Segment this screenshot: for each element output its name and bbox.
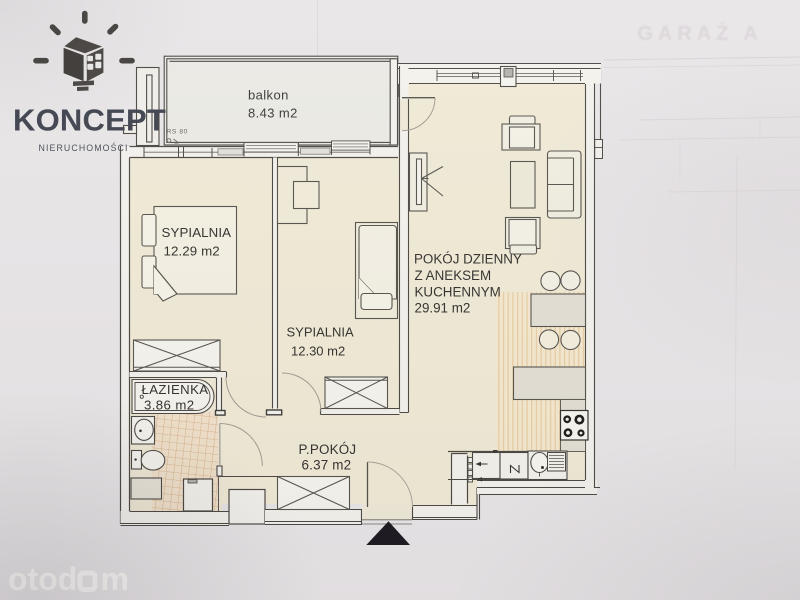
svg-text:SYPIALNIA: SYPIALNIA: [162, 225, 232, 240]
svg-text:3.86 m2: 3.86 m2: [144, 398, 194, 413]
svg-text:balkon: balkon: [248, 88, 289, 103]
svg-text:POKÓJ DZIENNY: POKÓJ DZIENNY: [414, 252, 522, 267]
svg-text:29.91 m2: 29.91 m2: [415, 301, 471, 316]
svg-text:6.37 m2: 6.37 m2: [302, 458, 352, 473]
svg-text:KUCHENNYM: KUCHENNYM: [415, 285, 501, 300]
svg-text:otod: otod: [8, 561, 77, 597]
svg-text:RS 80: RS 80: [167, 129, 188, 136]
svg-text:NIERUCHOMOŚCI: NIERUCHOMOŚCI: [39, 142, 129, 153]
svg-text:SYPIALNIA: SYPIALNIA: [287, 325, 355, 340]
svg-text:ŁAZIENKA: ŁAZIENKA: [142, 382, 209, 397]
svg-text:Z ANEKSEM: Z ANEKSEM: [415, 268, 492, 283]
svg-text:m: m: [101, 561, 129, 597]
svg-text:KONCEPT: KONCEPT: [13, 103, 166, 138]
svg-text:8.43 m2: 8.43 m2: [248, 106, 298, 121]
svg-text:12.30 m2: 12.30 m2: [291, 344, 345, 359]
svg-text:12.29 m2: 12.29 m2: [164, 244, 220, 259]
svg-text:GARAŻ A: GARAŻ A: [637, 22, 762, 45]
svg-text:P.POKÓJ: P.POKÓJ: [299, 442, 357, 457]
